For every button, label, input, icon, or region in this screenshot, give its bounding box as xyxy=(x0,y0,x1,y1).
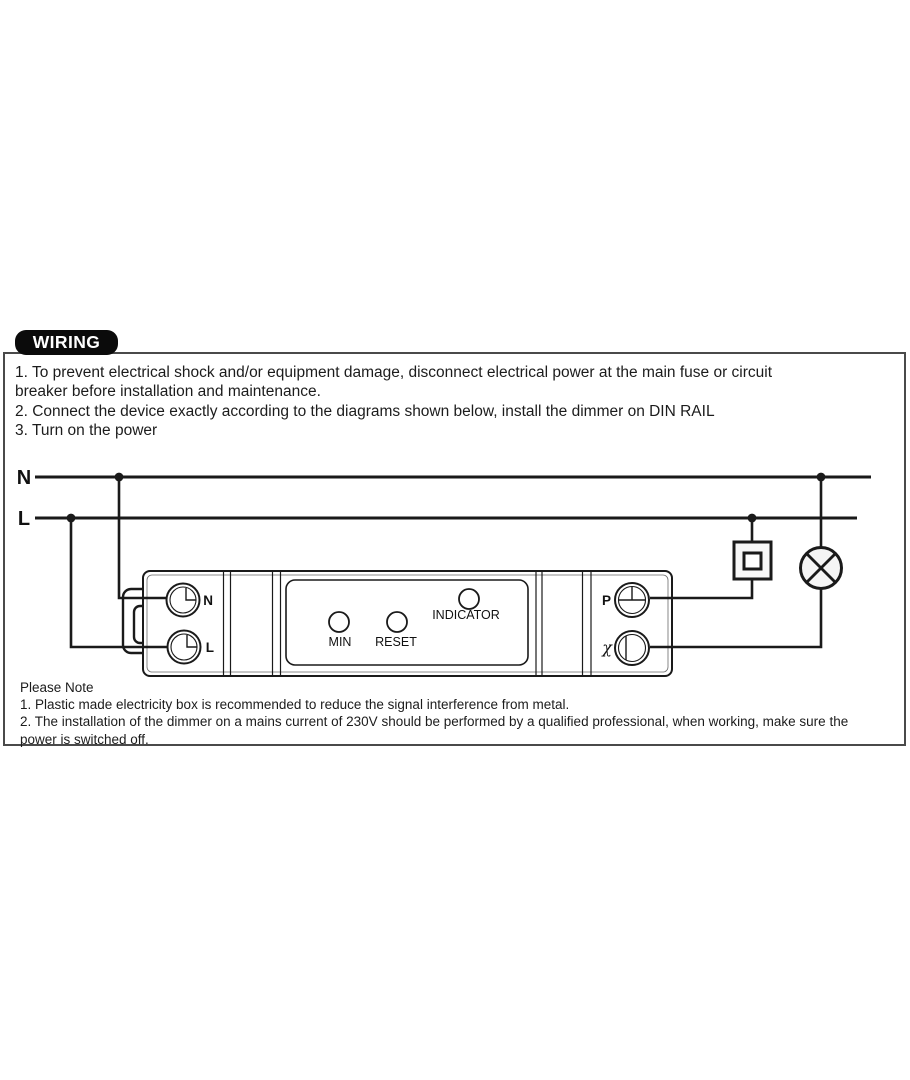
junction-dot xyxy=(67,514,76,523)
terminal-n-label: N xyxy=(203,593,213,608)
junction-dot xyxy=(115,473,124,482)
indicator-label: INDICATOR xyxy=(432,608,500,622)
wiring-diagram: MIN RESET INDICATOR N L xyxy=(0,0,910,1080)
min-label: MIN xyxy=(329,635,352,649)
terminal-load xyxy=(615,631,649,665)
wiring-badge-label: WIRING xyxy=(33,332,101,353)
terminal-p-label: P xyxy=(602,593,611,608)
terminal-n xyxy=(167,584,200,617)
reset-label: RESET xyxy=(375,635,417,649)
page: WIRING 1. To prevent electrical shock an… xyxy=(0,0,910,1080)
wiring-badge: WIRING xyxy=(15,330,118,355)
junction-dot xyxy=(748,514,757,523)
reset-button xyxy=(387,612,407,632)
dimmer-device: MIN RESET INDICATOR xyxy=(143,571,672,676)
neutral-bus-label: N xyxy=(17,467,31,489)
live-bus-label: L xyxy=(18,508,30,530)
junction-dot xyxy=(817,473,826,482)
min-button xyxy=(329,612,349,632)
terminal-l xyxy=(168,631,201,664)
switch-symbol xyxy=(734,542,771,579)
terminal-load-label: χ xyxy=(601,638,613,657)
terminal-p xyxy=(615,583,649,617)
wire-junctions xyxy=(67,473,826,523)
switch-inner-square xyxy=(744,553,761,569)
terminal-l-label: L xyxy=(206,640,214,655)
indicator-led xyxy=(459,589,479,609)
lamp-symbol xyxy=(801,548,842,589)
